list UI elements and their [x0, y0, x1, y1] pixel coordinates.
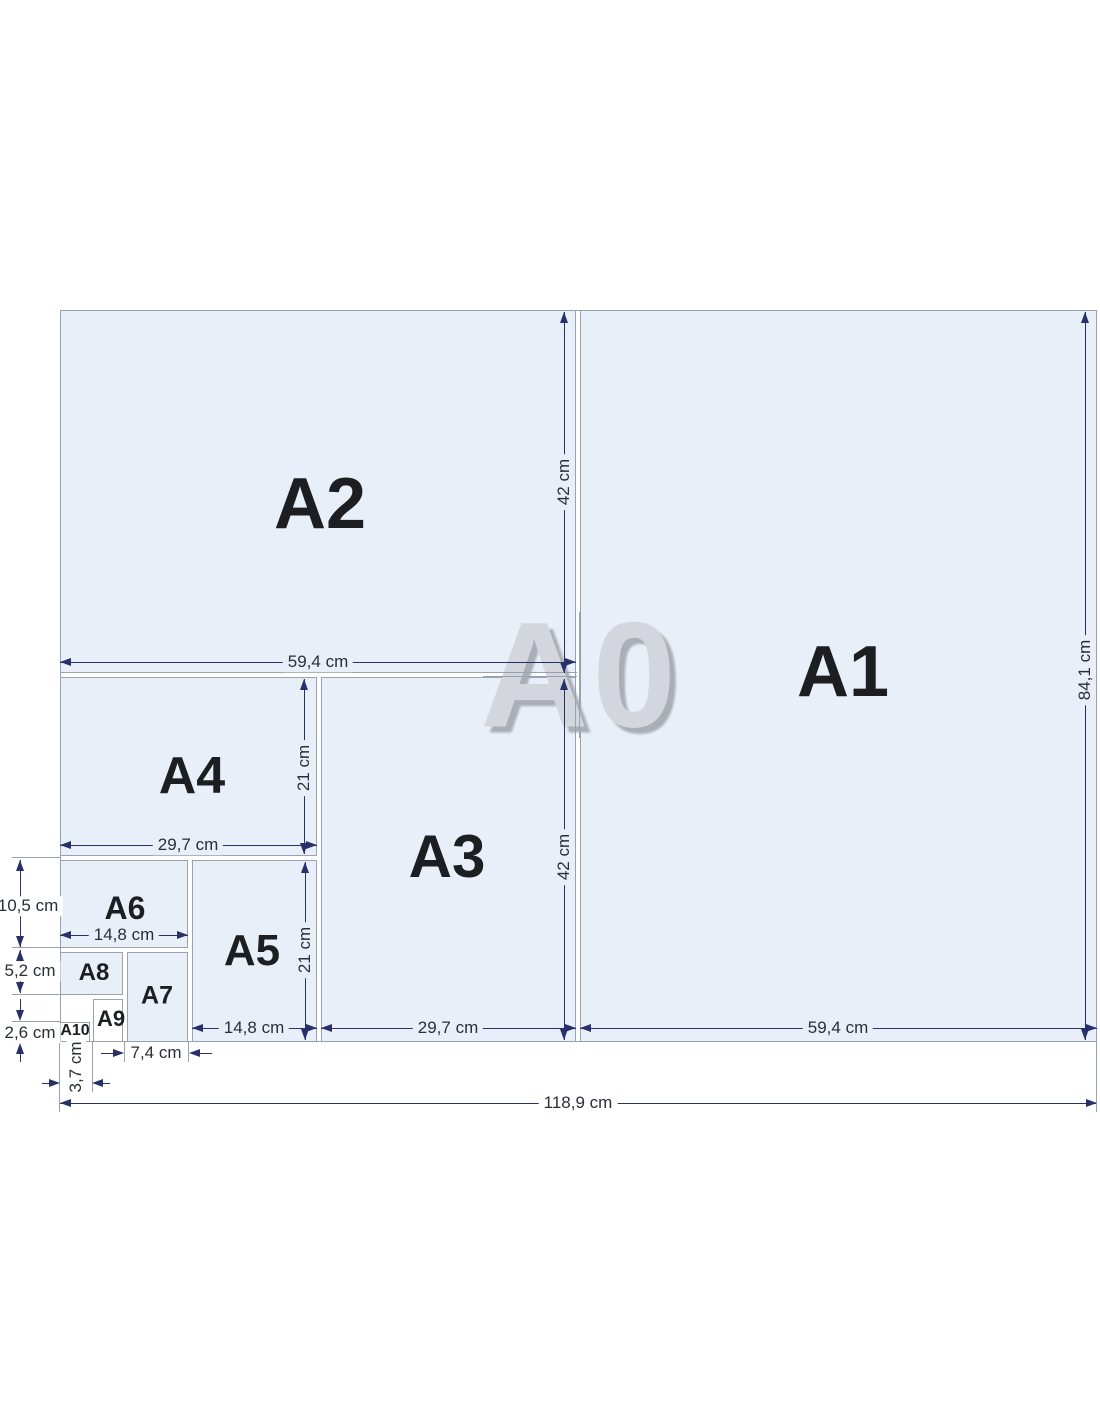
dim-label-a3-height: 42 cm [554, 829, 574, 885]
arrowhead-down-icon [16, 982, 24, 993]
paper-label-a9: A9 [97, 1008, 125, 1030]
arrowhead-down-icon [16, 1010, 24, 1021]
paper-label-a3: A3 [409, 827, 486, 887]
arrowhead-down-icon [300, 843, 308, 854]
extension-line [12, 947, 60, 948]
arrowhead-up-icon [16, 1043, 24, 1054]
dim-label-a6-height: 10,5 cm [0, 896, 63, 916]
dim-label-a1-width: 59,4 cm [803, 1018, 873, 1038]
dim-label-a4-height: 21 cm [294, 740, 314, 796]
watermark-a0-label: A0 [480, 589, 680, 762]
arrowhead-down-icon [1081, 1029, 1089, 1040]
dim-label-a10-height: 2,6 cm [0, 1023, 61, 1043]
paper-label-a1: A1 [797, 636, 889, 708]
arrowhead-left-icon [192, 1024, 203, 1032]
paper-label-a4: A4 [159, 750, 225, 802]
dim-label-a0-width: 118,9 cm [539, 1093, 618, 1113]
arrowhead-left-icon [189, 1049, 200, 1057]
dim-a7-width-line-right [200, 1053, 212, 1054]
arrowhead-up-icon [1081, 312, 1089, 323]
dim-label-a5-height: 21 cm [295, 922, 315, 978]
arrowhead-left-icon [321, 1024, 332, 1032]
extension-line [12, 1021, 60, 1022]
dim-label-a7-width: 7,4 cm [125, 1043, 186, 1063]
paper-label-a8: A8 [79, 961, 110, 985]
dim-label-a8-height: 5,2 cm [0, 961, 61, 981]
dim-a10-width-line-right [103, 1083, 110, 1084]
extension-line [12, 857, 60, 858]
arrowhead-left-icon [92, 1079, 103, 1087]
arrowhead-up-icon [16, 950, 24, 961]
arrowhead-down-icon [560, 1029, 568, 1040]
dim-label-a2-width: 59,4 cm [283, 652, 353, 672]
arrowhead-up-icon [16, 860, 24, 871]
edge-divider-left [575, 612, 576, 738]
dim-label-a4-width: 29,7 cm [153, 835, 223, 855]
dim-a10-width-line-left [42, 1083, 49, 1084]
arrowhead-left-icon [60, 931, 71, 939]
arrowhead-up-icon [301, 862, 309, 873]
dim-label-a1-height: 84,1 cm [1075, 635, 1095, 705]
paper-label-a2: A2 [274, 468, 366, 540]
arrowhead-down-icon [560, 662, 568, 673]
arrowhead-up-icon [560, 679, 568, 690]
arrowhead-down-icon [301, 1029, 309, 1040]
arrowhead-up-icon [300, 679, 308, 690]
dim-a10-height-line-top [20, 999, 21, 1010]
paper-label-a5: A5 [224, 929, 280, 973]
dim-a10-height-line-bottom [20, 1054, 21, 1062]
dim-a7-width-line-left [101, 1053, 113, 1054]
extension-line [12, 994, 60, 995]
arrowhead-left-icon [60, 658, 71, 666]
dim-label-a6-width: 14,8 cm [89, 925, 159, 945]
dim-label-a10-width: 3,7 cm [66, 1036, 86, 1097]
arrowhead-up-icon [560, 312, 568, 323]
paper-sizes-diagram: A0 A2 A1 A4 A3 A6 A5 A8 A7 A9 A10 59,4 c… [0, 0, 1100, 1422]
edge-a3-top [483, 676, 577, 677]
arrowhead-left-icon [580, 1024, 591, 1032]
arrowhead-right-icon [49, 1079, 60, 1087]
dim-label-a3-width: 29,7 cm [413, 1018, 483, 1038]
paper-label-a6: A6 [105, 892, 146, 924]
arrowhead-right-icon [113, 1049, 124, 1057]
arrowhead-left-icon [60, 841, 71, 849]
paper-label-a7: A7 [141, 984, 173, 1009]
arrowhead-right-icon [177, 931, 188, 939]
arrowhead-down-icon [16, 936, 24, 947]
edge-divider-right [579, 612, 580, 738]
dim-label-a2-height: 42 cm [554, 454, 574, 510]
arrowhead-right-icon [1086, 1099, 1097, 1107]
dim-label-a5-width: 14,8 cm [219, 1018, 289, 1038]
arrowhead-left-icon [60, 1099, 71, 1107]
